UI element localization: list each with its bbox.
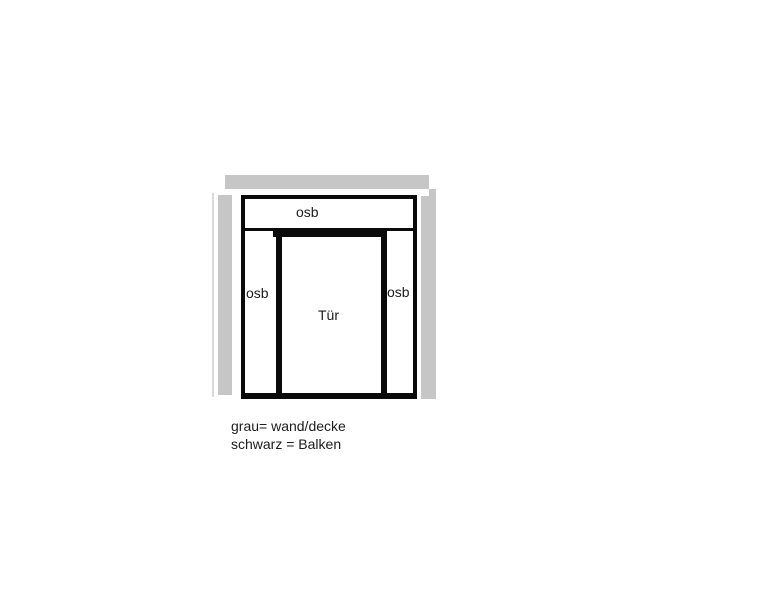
label-door: Tür [318, 307, 339, 323]
wall-left-thin-line [212, 193, 214, 397]
label-osb-top: osb [296, 204, 319, 220]
wall-left-bar [218, 195, 232, 395]
beam-door-post-right [381, 231, 387, 393]
legend-line-gray: grau= wand/decke [231, 417, 346, 435]
label-osb-left: osb [246, 285, 269, 301]
legend: grau= wand/decke schwarz = Balken [231, 417, 346, 453]
wall-ceiling-bar [225, 175, 429, 189]
beam-door-post-left [276, 231, 282, 393]
legend-line-black: schwarz = Balken [231, 435, 346, 453]
beam-door-lintel [273, 231, 387, 237]
wall-right-bar [421, 196, 436, 399]
label-osb-right: osb [387, 284, 410, 300]
document-canvas: osb osb osb Tür grau= wand/decke schwarz… [0, 0, 768, 614]
